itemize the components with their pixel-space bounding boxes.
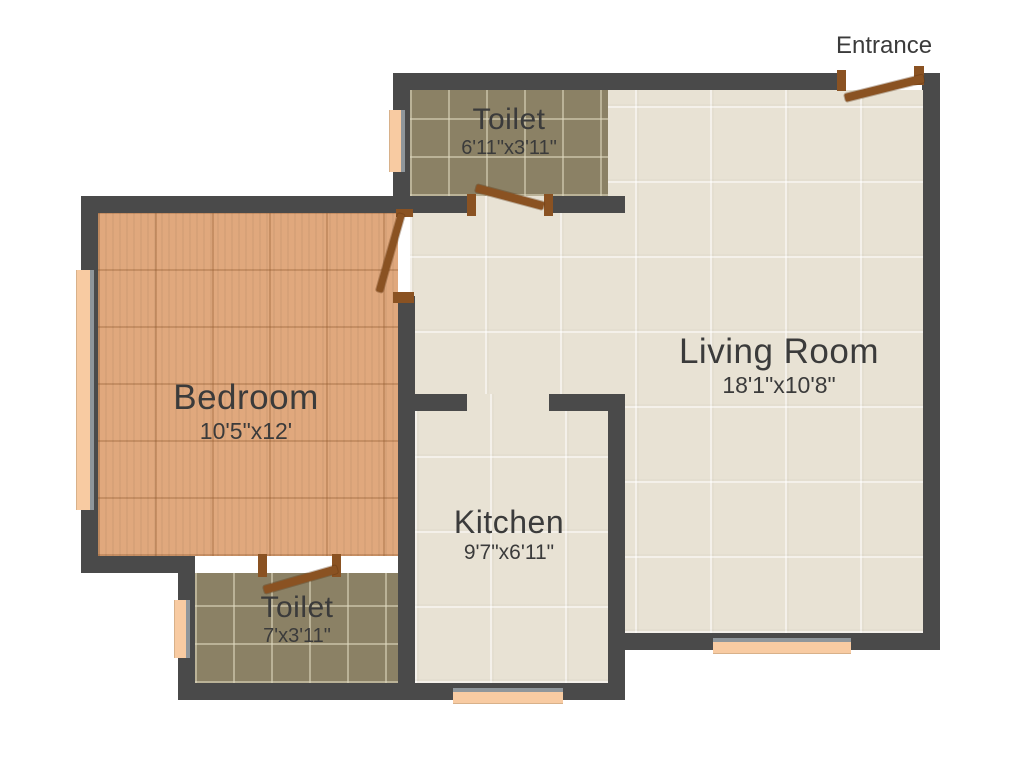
toilet-bottom-label: Toilet 7'x3'11" [196,592,398,649]
bedroom-door-jamb-bottom [393,292,414,303]
living-room-label: Living Room 18'1"x10'8" [628,334,930,400]
wall-toilet-top-bottom [548,196,625,213]
entrance-door-jamb-left [837,70,846,91]
bedroom-name: Bedroom [95,380,397,417]
toilet-top-door-jamb-left [467,194,476,216]
wall-bedroom-top [81,196,473,213]
bedroom-label: Bedroom 10'5"x12' [95,380,397,446]
wall-kitchen-living-divider [608,394,625,700]
toilet-bottom-dimensions: 7'x3'11" [196,624,398,649]
floor-plan: Entrance Toilet 6'11"x3'11" Bedroom 10'5… [0,0,1024,768]
kitchen-dimensions: 9'7"x6'11" [410,540,608,566]
living-room-window [713,638,851,654]
toilet-top-dimensions: 6'11"x3'11" [409,136,609,161]
wall-kitchen-left [398,296,415,700]
wall-bedroom-bottom [81,556,192,573]
wall-kitchen-top-left-stub [415,394,467,411]
living-room-name: Living Room [628,334,930,371]
kitchen-name: Kitchen [410,506,608,540]
kitchen-window [453,688,563,704]
toilet-top-door-jamb-right [544,194,553,216]
toilet-bottom-name: Toilet [196,592,398,624]
toilet-top-label: Toilet 6'11"x3'11" [409,104,609,161]
toilet-top-window [389,110,405,172]
entrance-label: Entrance [836,32,932,60]
toilet-bottom-door-jamb-left [258,554,267,577]
living-room-dimensions: 18'1"x10'8" [628,371,930,400]
toilet-bottom-window [174,600,190,658]
toilet-top-name: Toilet [409,104,609,136]
wall-top-left-segment [393,73,845,90]
bedroom-window [76,270,94,510]
kitchen-label: Kitchen 9'7"x6'11" [410,506,608,566]
bedroom-dimensions: 10'5"x12' [95,417,397,446]
